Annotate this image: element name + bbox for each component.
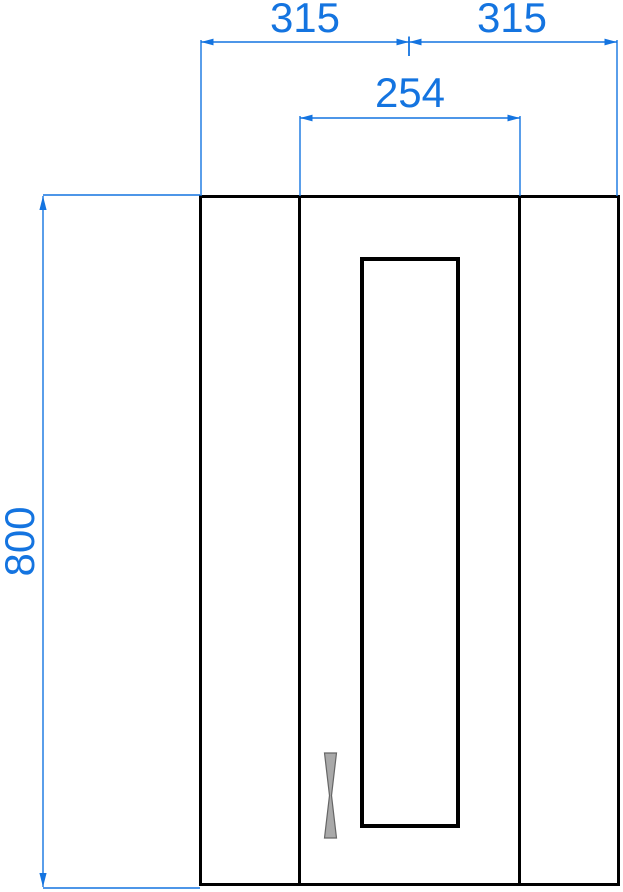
arrowhead-right-icon xyxy=(605,39,618,46)
arrowhead-mid-left-icon xyxy=(409,39,422,46)
dim-label-door-width: 254 xyxy=(375,69,445,116)
arrowhead-down-icon xyxy=(39,873,46,887)
dim-label-height: 800 xyxy=(0,506,43,576)
technical-drawing: 315 315 254 800 xyxy=(0,0,623,892)
arrowhead-left-icon xyxy=(300,115,313,122)
arrowhead-up-icon xyxy=(39,196,46,210)
dimension-height: 800 xyxy=(0,195,200,888)
dimension-door-width: 254 xyxy=(300,69,520,196)
arrowhead-left-icon xyxy=(201,39,214,46)
dim-label-top-right: 315 xyxy=(477,0,547,41)
cabinet xyxy=(201,196,619,885)
dim-label-top-left: 315 xyxy=(270,0,340,41)
arrowhead-mid-right-icon xyxy=(397,39,410,46)
cabinet-outline xyxy=(201,197,619,885)
arrowhead-right-icon xyxy=(508,115,521,122)
door-panel-inset xyxy=(362,259,458,826)
cabinet-dimension-drawing: 315 315 254 800 xyxy=(0,0,623,892)
door-handle xyxy=(325,753,337,838)
